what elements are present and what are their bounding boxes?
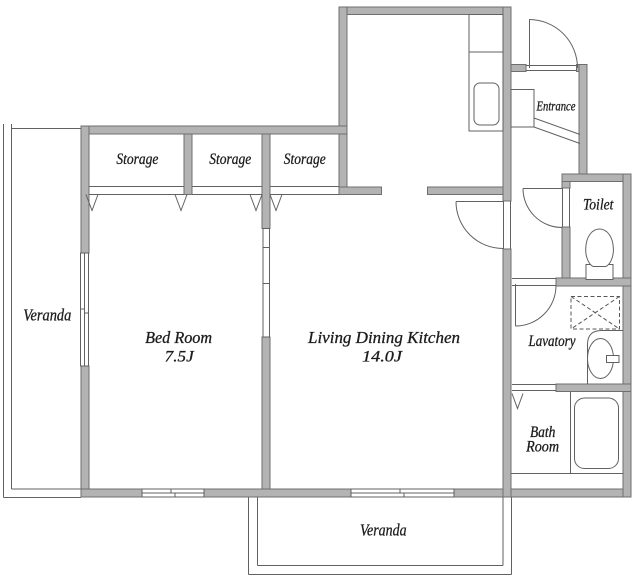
svg-text:14.0J: 14.0J [362,349,403,366]
svg-text:Entrance: Entrance [536,100,576,115]
svg-text:Living Dining Kitchen: Living Dining Kitchen [307,328,460,347]
svg-text:Toilet: Toilet [583,197,614,214]
svg-text:Veranda: Veranda [23,306,71,325]
svg-text:Bed Room: Bed Room [145,328,212,347]
svg-text:7.5J: 7.5J [165,349,195,366]
svg-text:Storage: Storage [116,151,158,168]
svg-text:Storage: Storage [209,151,251,168]
svg-text:Room: Room [525,439,559,456]
svg-text:Lavatory: Lavatory [528,333,576,350]
svg-text:Veranda: Veranda [360,521,407,540]
svg-text:Storage: Storage [284,151,326,168]
